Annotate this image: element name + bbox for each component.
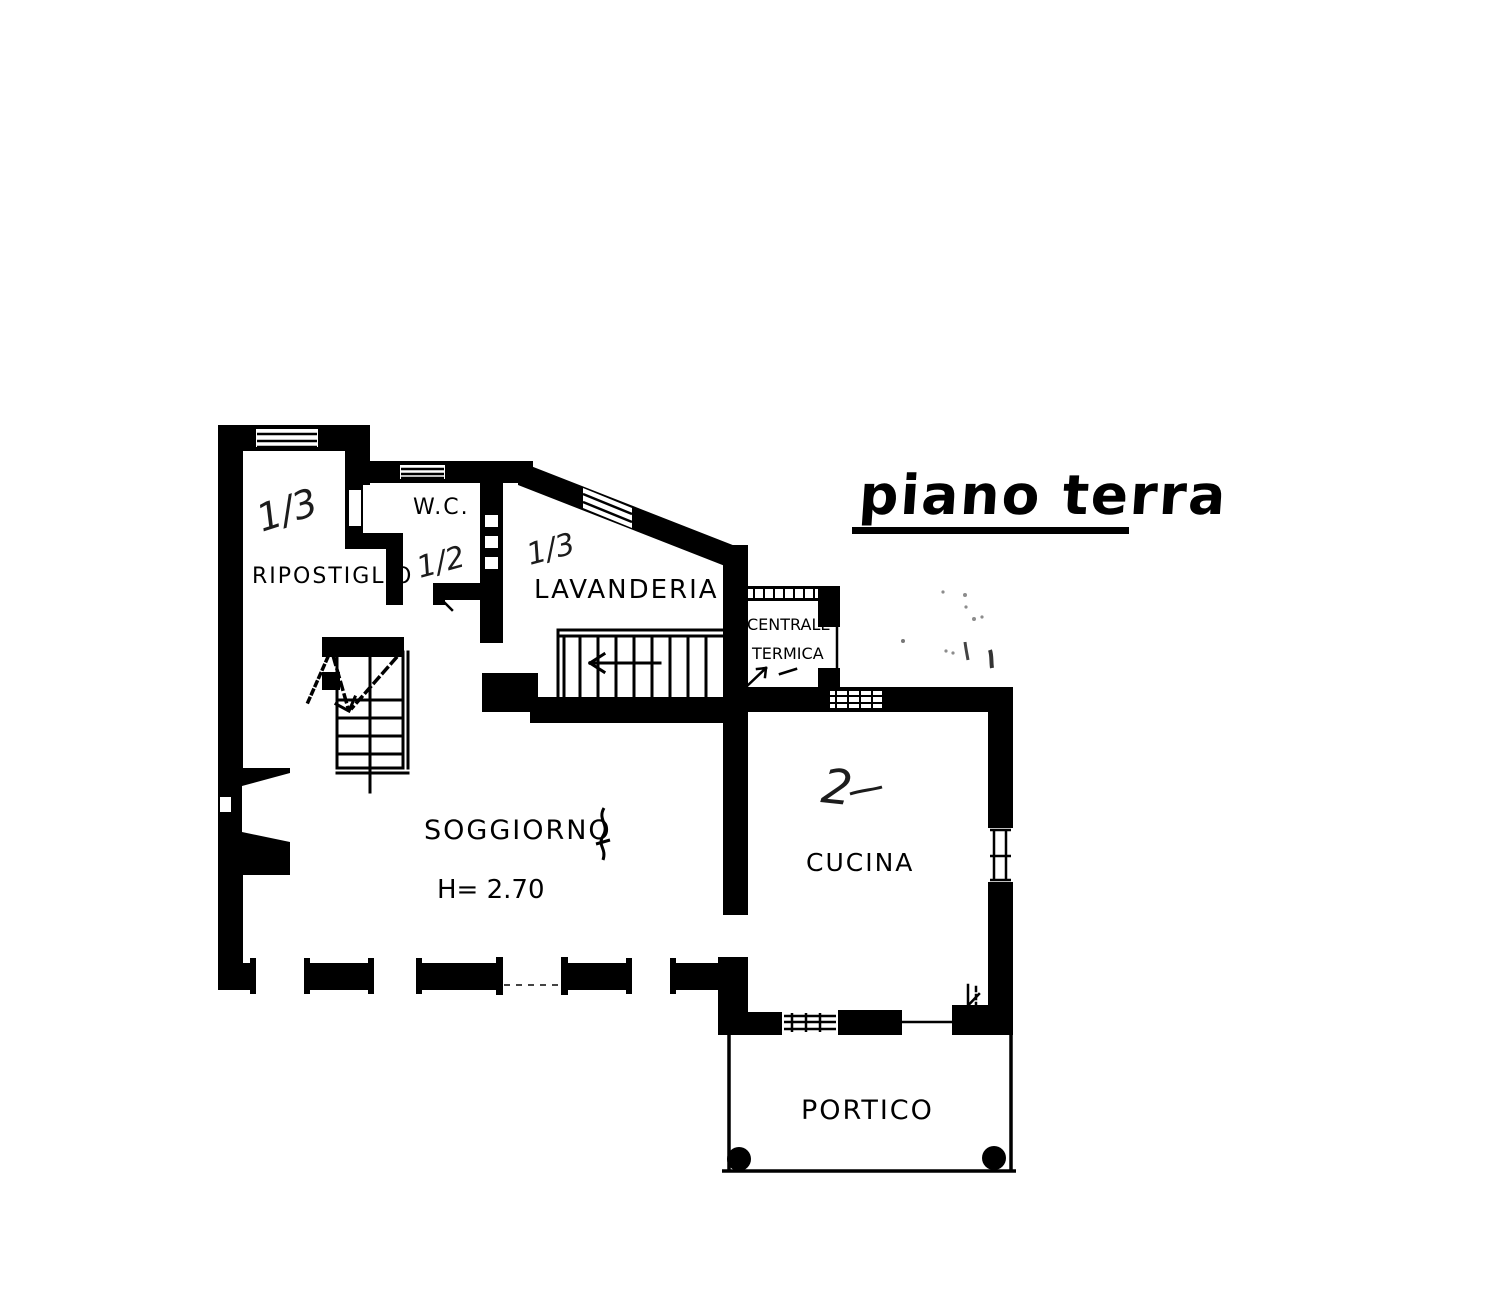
cucina-mark: 2 (819, 758, 855, 817)
room-label-portico: PORTICO (801, 1095, 934, 1126)
wall-end-cap (496, 957, 503, 995)
title-underline (852, 527, 1129, 534)
wall-segment (674, 963, 723, 990)
door-swing (780, 669, 796, 674)
portico-column (982, 1146, 1006, 1170)
portico-column (727, 1147, 751, 1171)
window (990, 830, 1011, 880)
title-block: piano terra (852, 463, 1230, 534)
pencil-dot (901, 639, 905, 643)
wall-segment (308, 963, 372, 990)
room-label-lavanderia: LAVANDERIA (534, 575, 719, 605)
door-swing (746, 668, 766, 687)
wall-segment (838, 1010, 902, 1035)
pencil-dot (941, 590, 944, 593)
window (485, 515, 498, 569)
wall-segment (988, 687, 1013, 828)
window (583, 488, 632, 528)
fraction-ripostiglio: 1/3 (251, 480, 323, 541)
pencil-dot (972, 617, 976, 621)
room-label-soggiorno: SOGGIORNO (424, 815, 612, 846)
window (400, 465, 445, 479)
wall-segment (218, 425, 243, 990)
wall-segment (482, 673, 538, 712)
floor-plan-page: piano terra RIPOSTIGLIO W.C. LAVANDERIA … (0, 0, 1500, 1301)
wall-segment (218, 963, 254, 990)
pencil-dot (944, 649, 947, 652)
wall-end-cap (561, 957, 568, 995)
room-label-centrale-termica-1: CENTRALE (747, 615, 830, 634)
fraction-lavanderia: 1/3 (523, 526, 579, 572)
room-label-ripostiglio: RIPOSTIGLIO (252, 564, 413, 589)
plan-title: piano terra (857, 463, 1230, 527)
wall-segment (818, 668, 840, 690)
room-label-centrale-termica-2: TERMICA (751, 644, 824, 663)
room-label-cucina: CUCINA (806, 848, 914, 877)
pencil-dot (980, 615, 983, 618)
pencil-marks (901, 590, 992, 668)
window (349, 490, 361, 526)
stair-direction-arrow (590, 654, 660, 672)
pencil-dot (964, 605, 967, 608)
floor-plan-drawing: piano terra RIPOSTIGLIO W.C. LAVANDERIA … (0, 0, 1500, 1301)
wall-segment (420, 963, 502, 990)
window (830, 690, 882, 709)
cucina-mark-tail (850, 787, 882, 794)
door-swing-marks (440, 598, 979, 1014)
wall-end-cap (304, 958, 310, 994)
wall-notch (220, 797, 231, 812)
room-label-wc: W.C. (413, 495, 470, 520)
main-staircase (558, 630, 723, 697)
wall-end-cap (416, 958, 422, 994)
wall-segment (322, 637, 404, 657)
pencil-stroke (965, 642, 968, 660)
pencil-dot (963, 593, 967, 597)
wall-end-cap (250, 958, 256, 994)
wall-end-cap (670, 958, 676, 994)
wall-segment (952, 1005, 1013, 1035)
window (784, 1013, 836, 1032)
wall-segment (530, 697, 723, 723)
wall-segment (563, 963, 628, 990)
pencil-dot (951, 651, 954, 654)
fireplace (218, 768, 290, 875)
room-height-note: H= 2.70 (437, 875, 545, 905)
winder-staircase (308, 645, 408, 792)
wall-end-cap (626, 958, 632, 994)
pencil-stroke (990, 650, 992, 668)
fraction-wc: 1/2 (413, 539, 469, 585)
window (256, 429, 318, 447)
wall-end-cap (368, 958, 374, 994)
wall-segment (718, 1012, 782, 1035)
